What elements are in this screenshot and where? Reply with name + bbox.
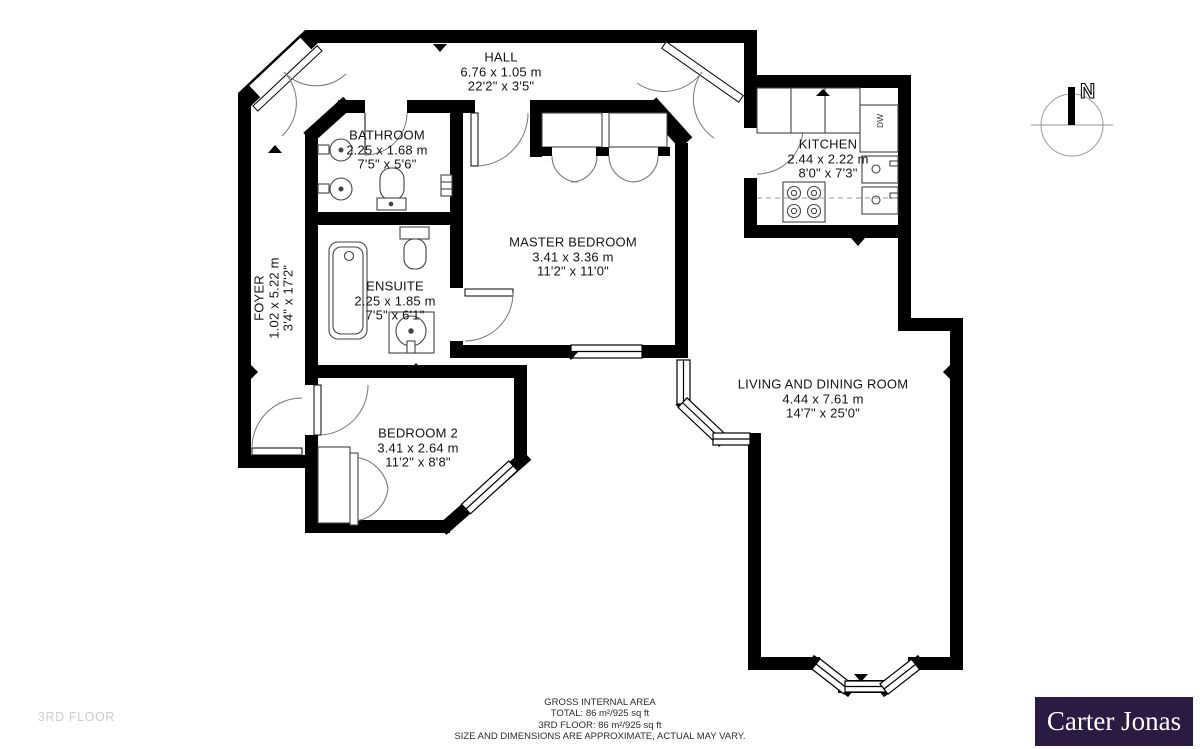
room-dim-imperial: 14'7" x 25'0" xyxy=(738,406,909,421)
room-dim-metric: 4.44 x 7.61 m xyxy=(738,392,909,407)
north-label: N xyxy=(1080,80,1095,103)
floor-watermark: 3RD FLOOR xyxy=(38,710,115,724)
bedroom2-door xyxy=(314,385,368,435)
room-name: FOYER xyxy=(252,257,267,338)
total-area-value: TOTAL: 86 m²/925 sq ft xyxy=(0,708,1200,719)
room-dim-metric: 6.76 x 1.05 m xyxy=(460,65,541,80)
room-dim-imperial: 7'5" x 6'1" xyxy=(354,308,435,323)
floor-plan-page: DW N HALL 6.76 x 1.05 m 22'2" x 3'5" BAT… xyxy=(0,0,1200,749)
disclaimer-text: SIZE AND DIMENSIONS ARE APPROXIMATE, ACT… xyxy=(0,731,1200,742)
room-dim-imperial: 22'2" x 3'5" xyxy=(460,79,541,94)
room-name: BATHROOM xyxy=(346,128,427,143)
footer-area-summary: GROSS INTERNAL AREA TOTAL: 86 m²/925 sq … xyxy=(0,697,1200,742)
room-dim-metric: 2.25 x 1.68 m xyxy=(346,143,427,158)
room-label-bedroom2: BEDROOM 2 3.41 x 2.64 m 11'2" x 8'8" xyxy=(377,426,458,470)
room-dim-imperial: 11'2" x 8'8" xyxy=(377,455,458,470)
room-label-hall: HALL 6.76 x 1.05 m 22'2" x 3'5" xyxy=(460,50,541,94)
window-bedroom2-diagonal xyxy=(462,461,518,514)
carter-jonas-logo: Carter Jonas xyxy=(1035,697,1193,746)
foyer-door xyxy=(252,398,302,455)
room-dim-metric: 2.44 x 2.22 m xyxy=(787,152,868,167)
room-dim-metric: 1.02 x 5.22 m xyxy=(267,257,282,338)
room-name: ENSUITE xyxy=(354,279,435,294)
room-dim-metric: 2.25 x 1.85 m xyxy=(354,294,435,309)
window-master-bottom xyxy=(571,345,642,358)
room-dim-imperial: 3'4" x 17'2" xyxy=(281,257,296,338)
dishwasher-label: DW xyxy=(875,114,885,128)
window-notch-vertical xyxy=(677,360,690,404)
wardrobe xyxy=(542,113,609,182)
room-label-foyer: FOYER 1.02 x 5.22 m 3'4" x 17'2" xyxy=(252,257,296,338)
room-name: BEDROOM 2 xyxy=(377,426,458,441)
kitchen-counter xyxy=(757,88,860,133)
north-arrow-icon: N xyxy=(1031,80,1113,156)
room-label-bathroom: BATHROOM 2.25 x 1.68 m 7'5" x 5'6" xyxy=(346,128,427,172)
room-label-kitchen: KITCHEN 2.44 x 2.22 m 8'0" x 7'3" xyxy=(787,137,868,181)
room-dim-metric: 3.41 x 2.64 m xyxy=(377,441,458,456)
floor-area-value: 3RD FLOOR: 86 m²/925 sq ft xyxy=(0,720,1200,731)
window-bay-right xyxy=(880,659,920,694)
window-notch-horizontal xyxy=(713,433,750,445)
room-dim-imperial: 7'5" x 5'6" xyxy=(346,157,427,172)
kitchen-unit xyxy=(862,187,898,214)
room-name: HALL xyxy=(460,50,541,65)
room-dim-metric: 3.41 x 3.36 m xyxy=(509,250,637,265)
ensuite-door xyxy=(465,289,513,341)
floor-plan-drawing: DW N xyxy=(0,0,1200,749)
toilet xyxy=(377,168,406,210)
room-name: KITCHEN xyxy=(787,137,868,152)
room-label-master-bedroom: MASTER BEDROOM 3.41 x 3.36 m 11'2" x 11'… xyxy=(509,235,637,279)
basin xyxy=(318,178,352,200)
radiator xyxy=(441,175,452,196)
room-name: MASTER BEDROOM xyxy=(509,235,637,250)
wardrobe xyxy=(609,113,670,182)
hob xyxy=(783,182,825,222)
master-bedroom-door xyxy=(471,113,528,166)
room-dim-imperial: 11'2" x 11'0" xyxy=(509,264,637,279)
logo-text: Carter Jonas xyxy=(1047,706,1181,737)
room-label-living-dining: LIVING AND DINING ROOM 4.44 x 7.61 m 14'… xyxy=(738,377,909,421)
toilet xyxy=(400,227,429,269)
window-bay-bottom xyxy=(845,681,885,692)
room-name: LIVING AND DINING ROOM xyxy=(738,377,909,392)
gross-internal-area-label: GROSS INTERNAL AREA xyxy=(0,697,1200,708)
room-label-ensuite: ENSUITE 2.25 x 1.85 m 7'5" x 6'1" xyxy=(354,279,435,323)
room-dim-imperial: 8'0" x 7'3" xyxy=(787,166,868,181)
